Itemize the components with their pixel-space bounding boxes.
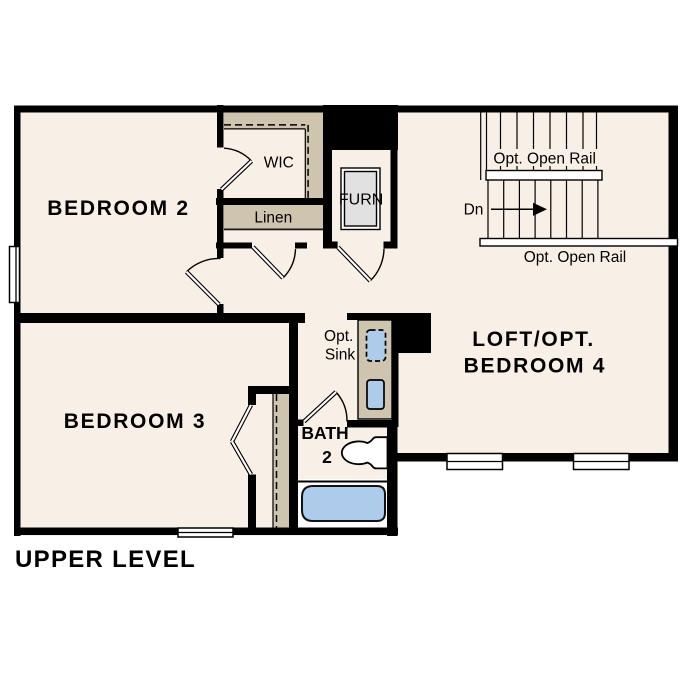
svg-text:BEDROOM 4: BEDROOM 4 [464, 355, 606, 378]
svg-text:LOFT/OPT.: LOFT/OPT. [472, 328, 595, 351]
svg-text:FURN: FURN [339, 191, 383, 208]
svg-text:BATH: BATH [301, 423, 348, 443]
svg-text:Opt. Open Rail: Opt. Open Rail [524, 249, 627, 266]
svg-text:UPPER LEVEL: UPPER LEVEL [15, 546, 196, 573]
svg-text:Dn: Dn [464, 202, 484, 219]
svg-text:Opt.: Opt. [324, 328, 353, 345]
svg-text:Linen: Linen [254, 209, 292, 226]
svg-text:Opt. Open Rail: Opt. Open Rail [493, 151, 596, 168]
svg-text:BEDROOM 3: BEDROOM 3 [64, 410, 206, 433]
svg-text:Sink: Sink [325, 346, 355, 363]
svg-text:WIC: WIC [264, 154, 294, 171]
svg-text:BEDROOM 2: BEDROOM 2 [47, 197, 189, 220]
svg-text:2: 2 [322, 447, 332, 467]
